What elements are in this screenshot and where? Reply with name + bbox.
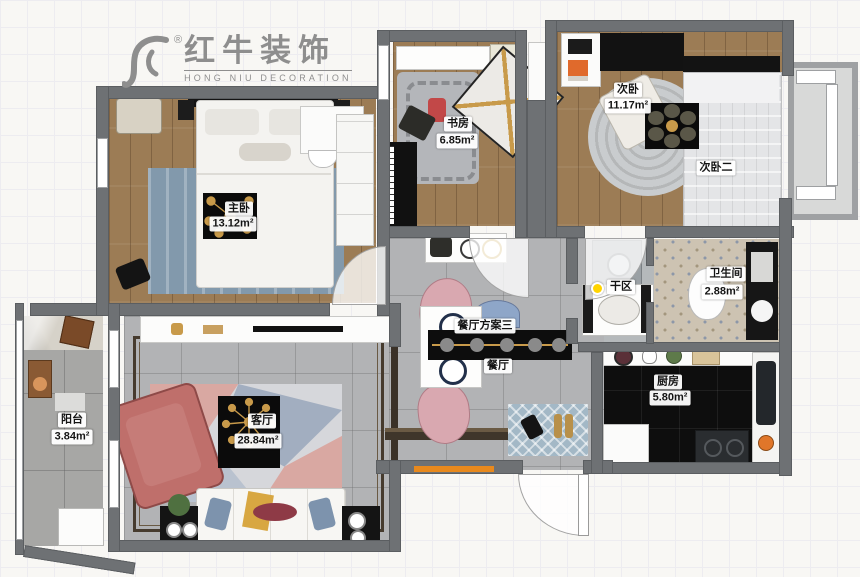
runner-plate bbox=[470, 338, 484, 352]
entry-doormat bbox=[508, 404, 588, 456]
table-lamp bbox=[182, 522, 198, 538]
wash-basin bbox=[751, 300, 773, 322]
fridge bbox=[603, 424, 649, 464]
registered-mark: ® bbox=[174, 34, 182, 46]
room-label-living: 客厅 bbox=[248, 414, 276, 429]
wall bbox=[646, 302, 654, 344]
room-area-balcony: 3.84m² bbox=[52, 430, 93, 445]
wall bbox=[515, 30, 527, 238]
wall bbox=[30, 303, 330, 316]
kitchen-sink-counter bbox=[752, 352, 781, 464]
dining-threshold-strip bbox=[391, 345, 398, 463]
flower-decor bbox=[430, 237, 452, 257]
bay-window-glass bbox=[826, 84, 838, 186]
wall bbox=[578, 342, 789, 352]
room-area-study: 6.85m² bbox=[437, 134, 478, 149]
floor-plan: ® 红牛装饰 HONG NIU DECORATION bbox=[0, 0, 860, 577]
bedroom2-pendant-panel bbox=[645, 103, 699, 149]
wall bbox=[381, 30, 527, 42]
dresser-chair bbox=[116, 98, 162, 134]
wall bbox=[566, 318, 578, 344]
balcony-washer bbox=[58, 508, 104, 546]
bath-vanity bbox=[746, 242, 778, 340]
shoes-black bbox=[520, 414, 544, 441]
balcony-cabinet bbox=[28, 360, 52, 398]
room-area-living: 28.84m² bbox=[235, 434, 282, 449]
sofa-pillow-blue bbox=[308, 497, 337, 531]
window bbox=[97, 138, 108, 188]
room-area-bathroom: 2.88m² bbox=[702, 285, 743, 300]
table-lamp bbox=[348, 512, 366, 530]
room-label-study: 书房 bbox=[444, 117, 472, 132]
room-label-bedroom2: 次卧 bbox=[614, 83, 642, 98]
bay-window-glass bbox=[796, 70, 836, 84]
room-label-bathroom: 卫生间 bbox=[707, 267, 746, 282]
orange-pot bbox=[758, 435, 774, 451]
dry-sink bbox=[598, 295, 640, 325]
wall bbox=[112, 540, 401, 552]
runner-plate bbox=[552, 338, 566, 352]
living-ceiling-panel bbox=[218, 396, 280, 468]
wall bbox=[96, 86, 109, 316]
wall bbox=[591, 352, 603, 474]
bed-cushion bbox=[239, 143, 291, 161]
tv bbox=[253, 326, 343, 332]
balcony-box bbox=[59, 315, 94, 349]
tv-decor bbox=[171, 323, 183, 335]
room-area-master: 13.12m² bbox=[210, 217, 257, 232]
burner bbox=[726, 439, 744, 457]
camera-marker-dot bbox=[591, 282, 604, 295]
brand-name: 红牛装饰 bbox=[184, 34, 352, 68]
shoes-gold bbox=[554, 414, 562, 438]
place-setting bbox=[439, 357, 467, 385]
sofa-pillow-blue bbox=[204, 497, 233, 531]
window bbox=[109, 330, 119, 388]
tv-cabinet bbox=[140, 316, 398, 343]
table-runner bbox=[428, 330, 572, 360]
cabinet-plant bbox=[33, 377, 47, 391]
table-lamp bbox=[166, 522, 182, 538]
bedroom2-wardrobe bbox=[600, 33, 684, 71]
shoe-cabinet-strip bbox=[414, 466, 494, 472]
pillow bbox=[205, 109, 259, 135]
bay-window-glass bbox=[796, 186, 836, 200]
bedroom2-bed bbox=[683, 72, 782, 230]
balcony-label-backing bbox=[55, 393, 85, 411]
room-label-dining: 餐厅 bbox=[484, 359, 512, 374]
towel bbox=[751, 252, 773, 282]
burner bbox=[704, 439, 722, 457]
nightstand bbox=[178, 100, 194, 120]
room-area-bedroom2: 11.17m² bbox=[605, 99, 651, 114]
room-label-dry-area: 干区 bbox=[607, 280, 635, 295]
wall bbox=[779, 198, 792, 476]
stove bbox=[695, 430, 749, 464]
room-label-bedroom2b: 次卧二 bbox=[697, 161, 736, 176]
master-wardrobe bbox=[336, 114, 374, 246]
room-label-balcony: 阳台 bbox=[58, 413, 86, 428]
runner-plate bbox=[528, 338, 542, 352]
runner-plate bbox=[440, 338, 454, 352]
entry-door-leaf bbox=[578, 474, 589, 536]
brand-subtitle: HONG NIU DECORATION bbox=[184, 70, 352, 83]
wall bbox=[645, 226, 794, 238]
room-label-kitchen: 厨房 bbox=[654, 375, 682, 390]
room-area-kitchen: 5.80m² bbox=[650, 391, 691, 406]
armchair-cushion bbox=[124, 401, 203, 488]
wall bbox=[591, 462, 789, 474]
sofa bbox=[196, 488, 346, 546]
bay-window bbox=[788, 62, 858, 220]
bull-logo-icon bbox=[122, 34, 174, 90]
wall bbox=[381, 226, 470, 238]
wall bbox=[545, 20, 794, 32]
kitchen-sink bbox=[756, 361, 776, 425]
blanket-fold bbox=[197, 173, 331, 175]
entry-door-swing bbox=[518, 474, 585, 536]
bedroom2-desk bbox=[561, 33, 601, 87]
window bbox=[109, 440, 119, 508]
wall bbox=[566, 238, 578, 284]
ottoman-darkred bbox=[253, 503, 297, 521]
window bbox=[16, 320, 23, 540]
room-label-master: 主卧 bbox=[225, 202, 253, 217]
study-desk bbox=[396, 46, 490, 70]
wall bbox=[545, 20, 557, 238]
wall bbox=[646, 238, 654, 266]
wall bbox=[389, 460, 401, 552]
label-dining-plan: 餐厅方案三 bbox=[455, 319, 516, 334]
wall bbox=[389, 303, 401, 347]
bedroom2-bed-headboard bbox=[683, 56, 780, 72]
pendant-lamp-icon bbox=[645, 103, 699, 149]
plant bbox=[168, 494, 190, 516]
window bbox=[378, 45, 389, 100]
tv-decor bbox=[203, 325, 223, 334]
wall bbox=[782, 20, 794, 76]
bed-pillow-band bbox=[684, 73, 779, 103]
runner-plate bbox=[500, 338, 514, 352]
laptop bbox=[568, 39, 592, 54]
books bbox=[568, 60, 588, 76]
brand-logo: ® 红牛装饰 HONG NIU DECORATION bbox=[122, 34, 352, 90]
